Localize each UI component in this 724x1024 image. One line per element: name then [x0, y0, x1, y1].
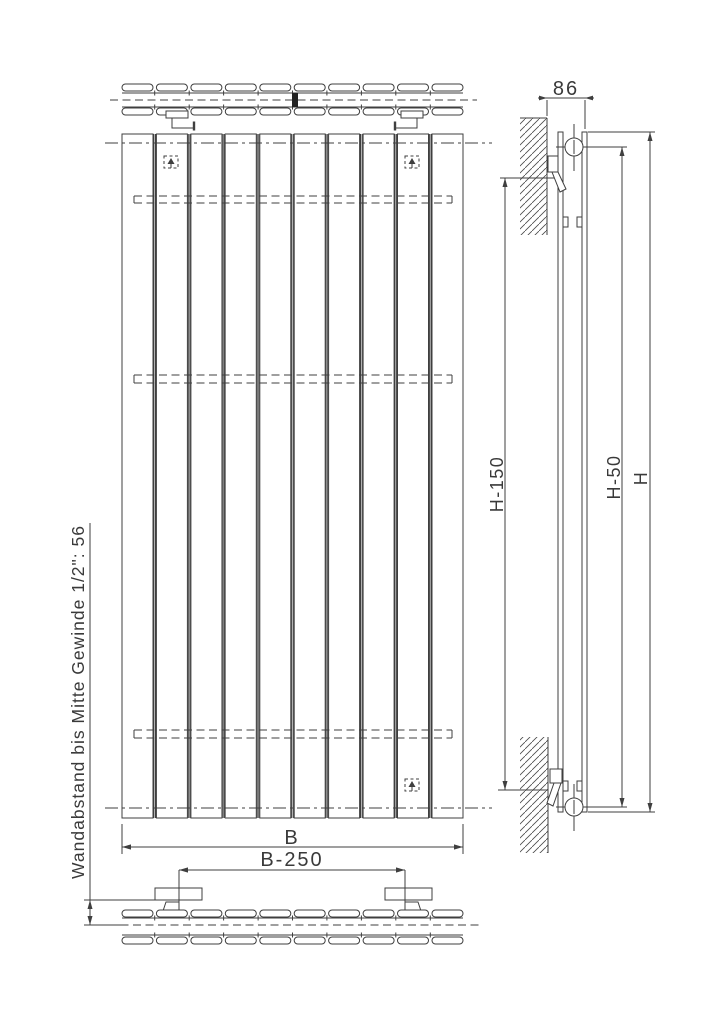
tube-section [329, 937, 360, 944]
tube-section [398, 84, 429, 91]
radiator-panel [191, 134, 222, 818]
radiator-panel [398, 134, 429, 818]
drawing-line [396, 867, 405, 872]
bottom-view [108, 888, 480, 944]
front-panels [122, 134, 463, 818]
drawing-canvas: H-150 [0, 0, 724, 1024]
front-view [105, 134, 492, 818]
radiator-panel [363, 134, 394, 818]
tube-section [156, 937, 187, 944]
radiator-technical-drawing: H-150 [0, 0, 724, 1024]
dim-label-wall-distance: Wandabstand bis Mitte Gewinde 1/2": 56 [68, 525, 88, 879]
tube-section [260, 937, 291, 944]
tube-section [191, 937, 222, 944]
dim-label-h-50: H-50 [604, 454, 624, 499]
drawing-line [122, 844, 131, 849]
tube-section [260, 108, 291, 115]
tube-section [363, 84, 394, 91]
drawing-line [179, 867, 188, 872]
tube-section [329, 108, 360, 115]
tube-section [432, 84, 463, 91]
dim-label-h-150: H-150 [487, 456, 507, 513]
drawing-line [88, 900, 93, 909]
tube-section [122, 910, 153, 917]
top-view-center-mark [292, 93, 298, 107]
top-bracket-left [166, 111, 194, 131]
dimension-h-150: H-150 [487, 178, 558, 790]
drawing-line [648, 132, 653, 141]
tube-section [156, 910, 187, 917]
wall-section-top [520, 118, 547, 235]
dimension-b-250: B-250 [179, 849, 405, 903]
tube-section [191, 84, 222, 91]
drawing-line [520, 737, 548, 853]
drawing-line [385, 888, 432, 900]
tube-section [156, 84, 187, 91]
tube-section [294, 108, 325, 115]
tube-section [122, 937, 153, 944]
tube-section [432, 910, 463, 917]
drawing-line [620, 147, 625, 156]
radiator-panel [225, 134, 256, 818]
dim-label-86: 86 [553, 78, 579, 100]
top-view-tube-row-front [122, 84, 463, 91]
tube-section [225, 937, 256, 944]
tube-section [363, 937, 394, 944]
drawing-line [548, 156, 558, 172]
radiator-panel [432, 134, 463, 818]
bracket-tab [577, 781, 582, 791]
tube-section [363, 910, 394, 917]
side-panel-back [558, 132, 563, 812]
tube-section [363, 108, 394, 115]
side-panel-front [582, 132, 587, 812]
drawing-line [401, 111, 423, 118]
top-view [110, 84, 477, 131]
drawing-line [620, 798, 625, 807]
bracket-tab [577, 217, 582, 227]
drawing-line [520, 118, 547, 235]
drawing-line [539, 96, 547, 101]
tube-section [260, 84, 291, 91]
tube-section [225, 84, 256, 91]
drawing-line [172, 118, 194, 128]
radiator-panel [156, 134, 187, 818]
tube-section [122, 108, 153, 115]
bracket-tab [563, 781, 568, 791]
tube-section [225, 910, 256, 917]
bottom-view-tube-row-back [122, 937, 463, 944]
wall-plate-right [385, 888, 432, 900]
tube-section [260, 910, 291, 917]
radiator-panel [260, 134, 291, 818]
drawing-line [503, 178, 508, 187]
drawing-line [550, 769, 562, 783]
radiator-panel [294, 134, 325, 818]
tube-section [329, 84, 360, 91]
drawing-line [552, 172, 566, 192]
tube-section [191, 108, 222, 115]
tube-section [432, 937, 463, 944]
radiator-panel [329, 134, 360, 818]
tube-section [225, 108, 256, 115]
drawing-line [454, 844, 463, 849]
bracket-tab [563, 217, 568, 227]
tube-section [191, 910, 222, 917]
drawing-line [166, 111, 188, 118]
tube-section [294, 84, 325, 91]
tube-section [294, 910, 325, 917]
tube-section [432, 108, 463, 115]
tube-section [294, 937, 325, 944]
drawing-line [648, 803, 653, 812]
tube-section [398, 910, 429, 917]
drawing-line [585, 96, 593, 101]
dim-label-b: B [284, 827, 299, 849]
drawing-line [395, 118, 417, 128]
bottom-view-joint-ticks [155, 916, 431, 938]
dim-label-b-250: B-250 [260, 849, 323, 871]
wall-section-bottom [520, 737, 548, 853]
dim-label-h: H [631, 471, 651, 486]
dimension-h-50: H-50 [583, 147, 627, 807]
radiator-panel [122, 134, 153, 818]
tube-section [122, 84, 153, 91]
tube-section [398, 937, 429, 944]
side-view: H-150 [487, 78, 655, 853]
drawing-line [88, 916, 93, 925]
drawing-line [503, 781, 508, 790]
tube-section [329, 910, 360, 917]
